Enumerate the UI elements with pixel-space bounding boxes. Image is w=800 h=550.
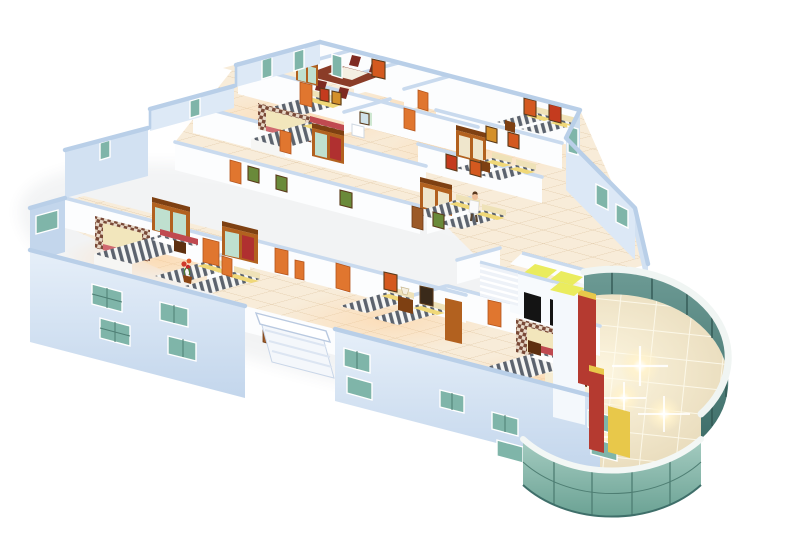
door	[488, 300, 501, 327]
window	[294, 49, 304, 71]
sink	[352, 124, 364, 138]
art	[486, 126, 497, 143]
art	[340, 190, 352, 208]
door	[336, 263, 350, 292]
art	[446, 154, 457, 171]
wardrobe-door	[242, 235, 254, 261]
wood-panel	[445, 298, 462, 344]
mirror	[360, 112, 369, 125]
door	[295, 260, 304, 280]
counter-red	[589, 370, 604, 453]
door	[275, 248, 288, 275]
art	[549, 104, 561, 123]
door	[230, 160, 241, 184]
door	[280, 130, 291, 154]
art	[470, 160, 481, 177]
window	[262, 57, 272, 79]
wardrobe-door	[315, 132, 327, 158]
door	[222, 256, 232, 277]
art	[248, 166, 259, 183]
art	[332, 91, 341, 105]
art	[433, 212, 444, 229]
art	[320, 88, 329, 102]
wardrobe-door	[225, 231, 239, 258]
person-body	[469, 200, 479, 214]
wardrobe-door	[423, 187, 435, 210]
wardrobe-door	[459, 135, 470, 158]
cabinet-door	[308, 66, 316, 84]
art	[276, 175, 287, 192]
art	[508, 132, 519, 149]
door	[412, 206, 423, 230]
yellow-bench	[608, 406, 630, 458]
door	[300, 82, 312, 107]
elevator-door	[524, 292, 541, 323]
floorplan-render	[0, 0, 800, 550]
window	[100, 140, 110, 160]
window	[332, 54, 342, 78]
door	[418, 90, 428, 111]
art	[372, 59, 385, 79]
art	[420, 286, 433, 306]
wardrobe-door	[473, 138, 483, 161]
isometric-scene	[0, 0, 800, 550]
window	[190, 98, 200, 118]
art	[524, 98, 536, 117]
door	[203, 238, 219, 266]
art	[384, 272, 397, 292]
door	[404, 108, 415, 131]
wardrobe-door	[330, 136, 341, 161]
